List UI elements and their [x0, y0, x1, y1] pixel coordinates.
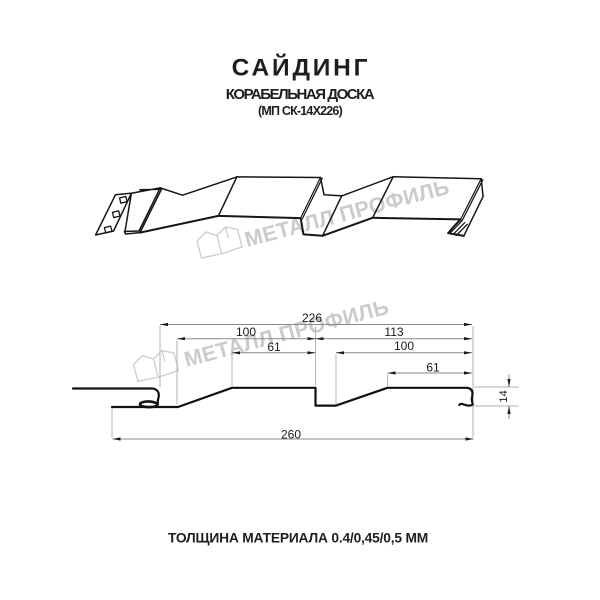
svg-text:61: 61: [426, 361, 440, 375]
svg-text:МЕТАЛЛ ПРОФИЛЬ: МЕТАЛЛ ПРОФИЛЬ: [242, 175, 452, 252]
svg-text:14: 14: [498, 390, 510, 403]
svg-text:(МП СК-14Х226): (МП СК-14Х226): [258, 104, 343, 118]
svg-text:100: 100: [236, 325, 256, 339]
svg-text:113: 113: [384, 325, 403, 339]
svg-text:226: 226: [302, 311, 322, 325]
svg-text:КОРАБЕЛЬНАЯ ДОСКА: КОРАБЕЛЬНАЯ ДОСКА: [226, 86, 375, 103]
svg-text:ТОЛЩИНА МАТЕРИАЛА 0.4/0,45/0,5: ТОЛЩИНА МАТЕРИАЛА 0.4/0,45/0,5 ММ: [168, 531, 428, 546]
svg-text:61: 61: [267, 340, 281, 354]
svg-text:САЙДИНГ: САЙДИНГ: [232, 54, 371, 82]
svg-text:260: 260: [281, 428, 301, 442]
svg-text:100: 100: [394, 339, 414, 353]
svg-text:МЕТАЛЛ ПРОФИЛЬ: МЕТАЛЛ ПРОФИЛЬ: [182, 295, 392, 372]
